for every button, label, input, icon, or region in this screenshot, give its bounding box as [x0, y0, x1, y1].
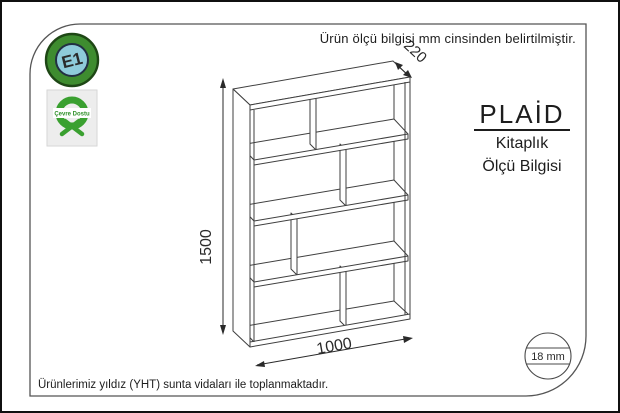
eco-logo: Çevre Dostu — [47, 90, 97, 146]
assembly-note: Ürünlerimiz yıldız (YHT) sunta vidaları … — [38, 379, 328, 391]
divider-row4 — [340, 266, 346, 327]
sheet-title: Ölçü Bilgisi — [450, 157, 594, 177]
thickness-label: 18 mm — [531, 351, 565, 363]
height-dim-label: 1500 — [198, 229, 215, 265]
product-dimension-sheet: E1 Çevre Dostu — [0, 0, 620, 413]
divider-row3 — [291, 213, 297, 275]
bookcase-shelves — [254, 134, 408, 287]
width-arrow-left — [255, 361, 265, 367]
thickness-symbol: 18 mm — [525, 333, 571, 379]
divider-row2 — [340, 144, 346, 206]
bookcase-drawing — [233, 61, 410, 347]
eco-logo-label: Çevre Dostu — [54, 112, 90, 118]
brand-name: PLAİD — [474, 101, 569, 131]
title-block: PLAİD Kitaplık Ölçü Bilgisi — [450, 101, 594, 177]
divider-row1 — [310, 93, 316, 150]
width-arrow-right — [403, 336, 413, 343]
left-side-panel — [233, 89, 250, 347]
product-category: Kitaplık — [450, 134, 594, 154]
width-dim-label: 1000 — [315, 335, 353, 358]
measurement-unit-note: Ürün ölçü bilgisi mm cinsinden belirtilm… — [320, 31, 576, 46]
height-arrow-down — [220, 325, 226, 335]
height-arrow-up — [220, 78, 226, 88]
dimension-drawing: E1 Çevre Dostu — [2, 2, 620, 413]
e1-badge: E1 — [46, 34, 98, 86]
